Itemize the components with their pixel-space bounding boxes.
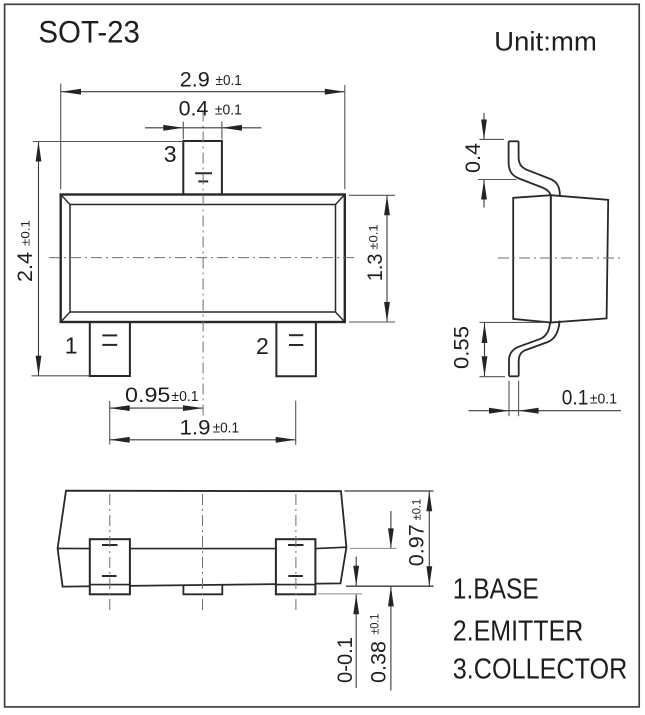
svg-text:0.55: 0.55 bbox=[450, 326, 474, 369]
svg-text:0.38: 0.38 bbox=[367, 641, 391, 683]
svg-text:±0.1: ±0.1 bbox=[171, 389, 198, 405]
svg-text:1.3: 1.3 bbox=[363, 254, 387, 282]
svg-text:0.97: 0.97 bbox=[405, 524, 429, 566]
svg-text:±0.1: ±0.1 bbox=[370, 614, 382, 635]
svg-text:3.COLLECTOR: 3.COLLECTOR bbox=[453, 654, 628, 686]
svg-text:±0.1: ±0.1 bbox=[590, 391, 617, 407]
svg-text:1.9: 1.9 bbox=[180, 415, 211, 439]
svg-text:2.EMITTER: 2.EMITTER bbox=[453, 616, 584, 648]
svg-text:0-0.1: 0-0.1 bbox=[333, 637, 357, 683]
svg-text:1.BASE: 1.BASE bbox=[453, 573, 539, 605]
svg-text:0.4: 0.4 bbox=[461, 143, 485, 173]
svg-text:1: 1 bbox=[65, 332, 78, 358]
svg-text:±0.1: ±0.1 bbox=[216, 73, 242, 89]
svg-text:SOT-23: SOT-23 bbox=[38, 14, 139, 50]
svg-text:2.4: 2.4 bbox=[13, 252, 37, 282]
svg-text:2.9: 2.9 bbox=[180, 67, 210, 91]
svg-text:0.1: 0.1 bbox=[562, 385, 589, 409]
svg-text:±0.1: ±0.1 bbox=[213, 421, 239, 437]
svg-text:3: 3 bbox=[164, 141, 177, 167]
svg-text:±0.1: ±0.1 bbox=[410, 499, 424, 521]
svg-text:±0.1: ±0.1 bbox=[367, 224, 381, 250]
svg-text:±0.1: ±0.1 bbox=[215, 103, 242, 119]
svg-text:Unit:mm: Unit:mm bbox=[494, 26, 597, 56]
svg-text:±0.1: ±0.1 bbox=[19, 220, 33, 246]
svg-text:2: 2 bbox=[256, 333, 269, 359]
svg-text:0.95: 0.95 bbox=[125, 383, 170, 407]
svg-text:0.4: 0.4 bbox=[179, 97, 209, 121]
